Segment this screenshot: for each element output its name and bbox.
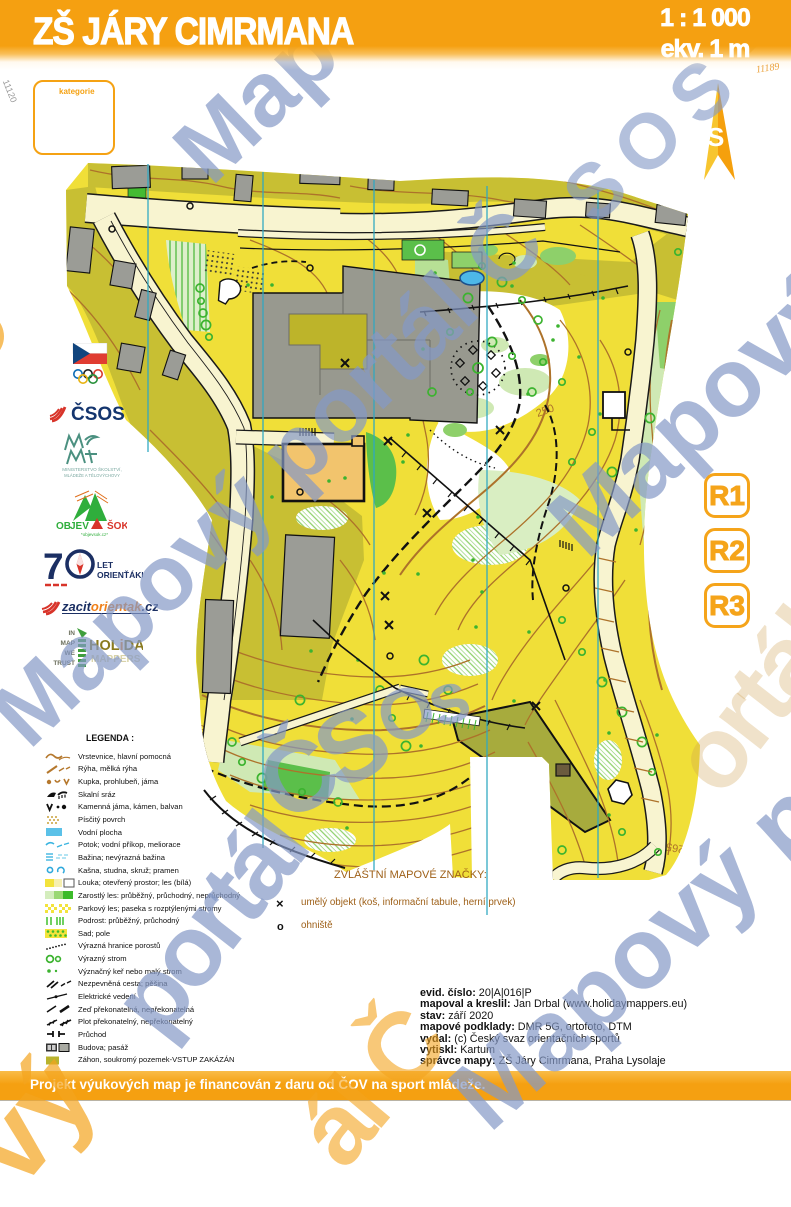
svg-text:MLÁDEŽE A TĚLOVÝCHOVY: MLÁDEŽE A TĚLOVÝCHOVY bbox=[64, 473, 120, 478]
svg-text:OB: OB bbox=[56, 521, 71, 532]
svg-text:ŠOK: ŠOK bbox=[107, 519, 127, 532]
svg-text:JEV: JEV bbox=[70, 521, 89, 532]
svg-text:ČSOS: ČSOS bbox=[71, 403, 125, 425]
svg-text:MINISTERSTVO ŠKOLSTVÍ,: MINISTERSTVO ŠKOLSTVÍ, bbox=[62, 466, 121, 472]
svg-text:*objevsok.cz*: *objevsok.cz* bbox=[81, 532, 108, 537]
svg-text:7: 7 bbox=[43, 546, 64, 587]
